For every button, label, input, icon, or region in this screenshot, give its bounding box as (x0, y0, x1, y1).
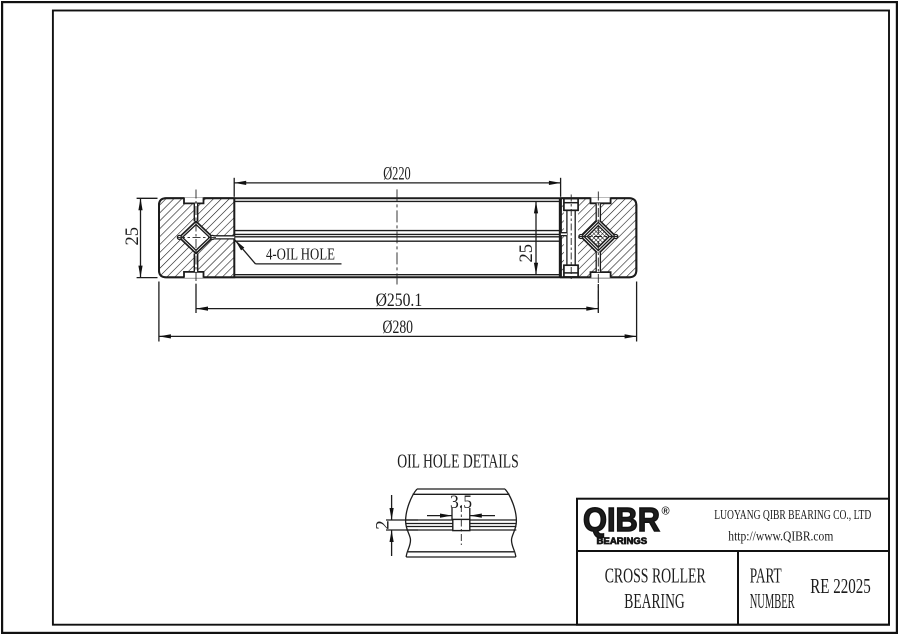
svg-text:3.5: 3.5 (450, 492, 472, 513)
svg-text:Ø280: Ø280 (383, 317, 414, 338)
svg-text:OIL HOLE DETAILS: OIL HOLE DETAILS (397, 450, 519, 472)
svg-text:Ø250.1: Ø250.1 (376, 290, 423, 311)
svg-text:BEARING: BEARING (624, 589, 685, 613)
svg-text:PART: PART (750, 563, 782, 587)
svg-text:2: 2 (374, 520, 394, 530)
svg-text:CROSS ROLLER: CROSS ROLLER (605, 563, 706, 587)
svg-text:Ø220: Ø220 (383, 164, 411, 185)
svg-text:®: ® (662, 506, 670, 518)
svg-text:RE 22025: RE 22025 (810, 574, 871, 598)
svg-text:4-OIL HOLE: 4-OIL HOLE (266, 245, 335, 264)
svg-text:NUMBER: NUMBER (750, 589, 795, 613)
svg-text:25: 25 (517, 244, 537, 262)
svg-text:http://www.QIBR.com: http://www.QIBR.com (728, 529, 833, 544)
svg-text:QIBR: QIBR (583, 502, 660, 539)
svg-text:BEARINGS: BEARINGS (597, 536, 648, 546)
svg-text:25: 25 (123, 227, 143, 246)
svg-text:LUOYANG QIBR BEARING CO., LTD: LUOYANG QIBR BEARING CO., LTD (714, 508, 871, 523)
